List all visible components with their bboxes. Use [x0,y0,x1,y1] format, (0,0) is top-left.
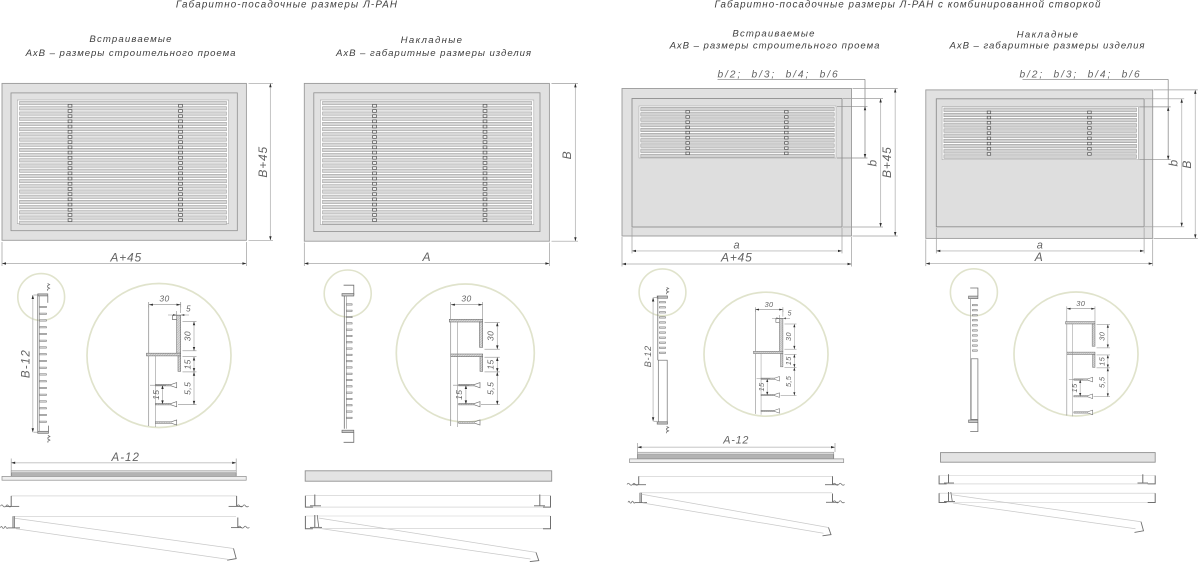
svg-text:5: 5 [788,310,792,317]
svg-text:5,5: 5,5 [784,375,793,387]
svg-text:А-12: А-12 [111,452,140,464]
svg-text:15: 15 [1098,356,1107,366]
svg-text:АхВ – размеры строительного пр: АхВ – размеры строительного проема [669,41,881,52]
svg-text:5,5: 5,5 [182,382,192,395]
svg-text:b: b [1167,159,1181,166]
svg-text:А-12: А-12 [722,435,749,447]
svg-text:b/2; b/3; b/4; b/6: b/2; b/3; b/4; b/6 [717,69,839,80]
svg-text:Встраиваемые: Встраиваемые [89,34,172,45]
svg-text:5: 5 [186,305,191,314]
svg-text:30: 30 [159,294,169,304]
svg-text:АхВ – габаритные размеры издел: АхВ – габаритные размеры изделия [335,48,532,59]
svg-text:В: В [560,151,574,160]
svg-text:В-12: В-12 [643,345,653,367]
svg-text:15: 15 [454,390,464,400]
svg-text:В: В [1180,160,1194,169]
svg-text:30: 30 [182,331,192,341]
svg-text:15: 15 [784,356,793,365]
svg-text:30: 30 [1076,299,1086,308]
svg-text:Накладные: Накладные [1017,30,1080,41]
svg-text:А: А [421,250,431,264]
svg-text:Габаритно-посадочные размеры Л: Габаритно-посадочные размеры Л-РАН [176,0,398,10]
svg-text:Встраиваемые: Встраиваемые [732,29,815,40]
svg-text:А: А [1034,250,1044,264]
svg-text:Габаритно-посадочные размеры Л: Габаритно-посадочные размеры Л-РАН с ком… [714,0,1101,10]
svg-text:15: 15 [1070,383,1079,393]
svg-text:b/2; b/3; b/4; b/6: b/2; b/3; b/4; b/6 [1019,69,1141,80]
svg-text:15: 15 [151,390,161,400]
svg-text:30: 30 [784,332,793,341]
svg-text:30: 30 [461,294,471,304]
svg-text:5,5: 5,5 [1098,376,1107,388]
svg-text:5,5: 5,5 [486,382,496,395]
svg-text:b: b [865,159,879,166]
svg-text:Накладные: Накладные [401,35,464,46]
svg-text:15: 15 [757,382,766,391]
svg-text:АхВ – габаритные размеры издел: АхВ – габаритные размеры изделия [948,41,1145,52]
svg-text:15: 15 [486,359,496,369]
svg-text:30: 30 [486,331,496,341]
svg-text:А+45: А+45 [109,250,142,264]
svg-text:АхВ – размеры строительного пр: АхВ – размеры строительного проема [25,48,237,59]
svg-text:А+45: А+45 [720,251,753,265]
svg-text:В-12: В-12 [21,349,33,378]
svg-text:30: 30 [765,300,774,309]
svg-text:15: 15 [182,359,192,369]
svg-text:30: 30 [1098,331,1107,341]
svg-text:В+45: В+45 [880,146,894,178]
svg-text:В+45: В+45 [256,146,270,178]
